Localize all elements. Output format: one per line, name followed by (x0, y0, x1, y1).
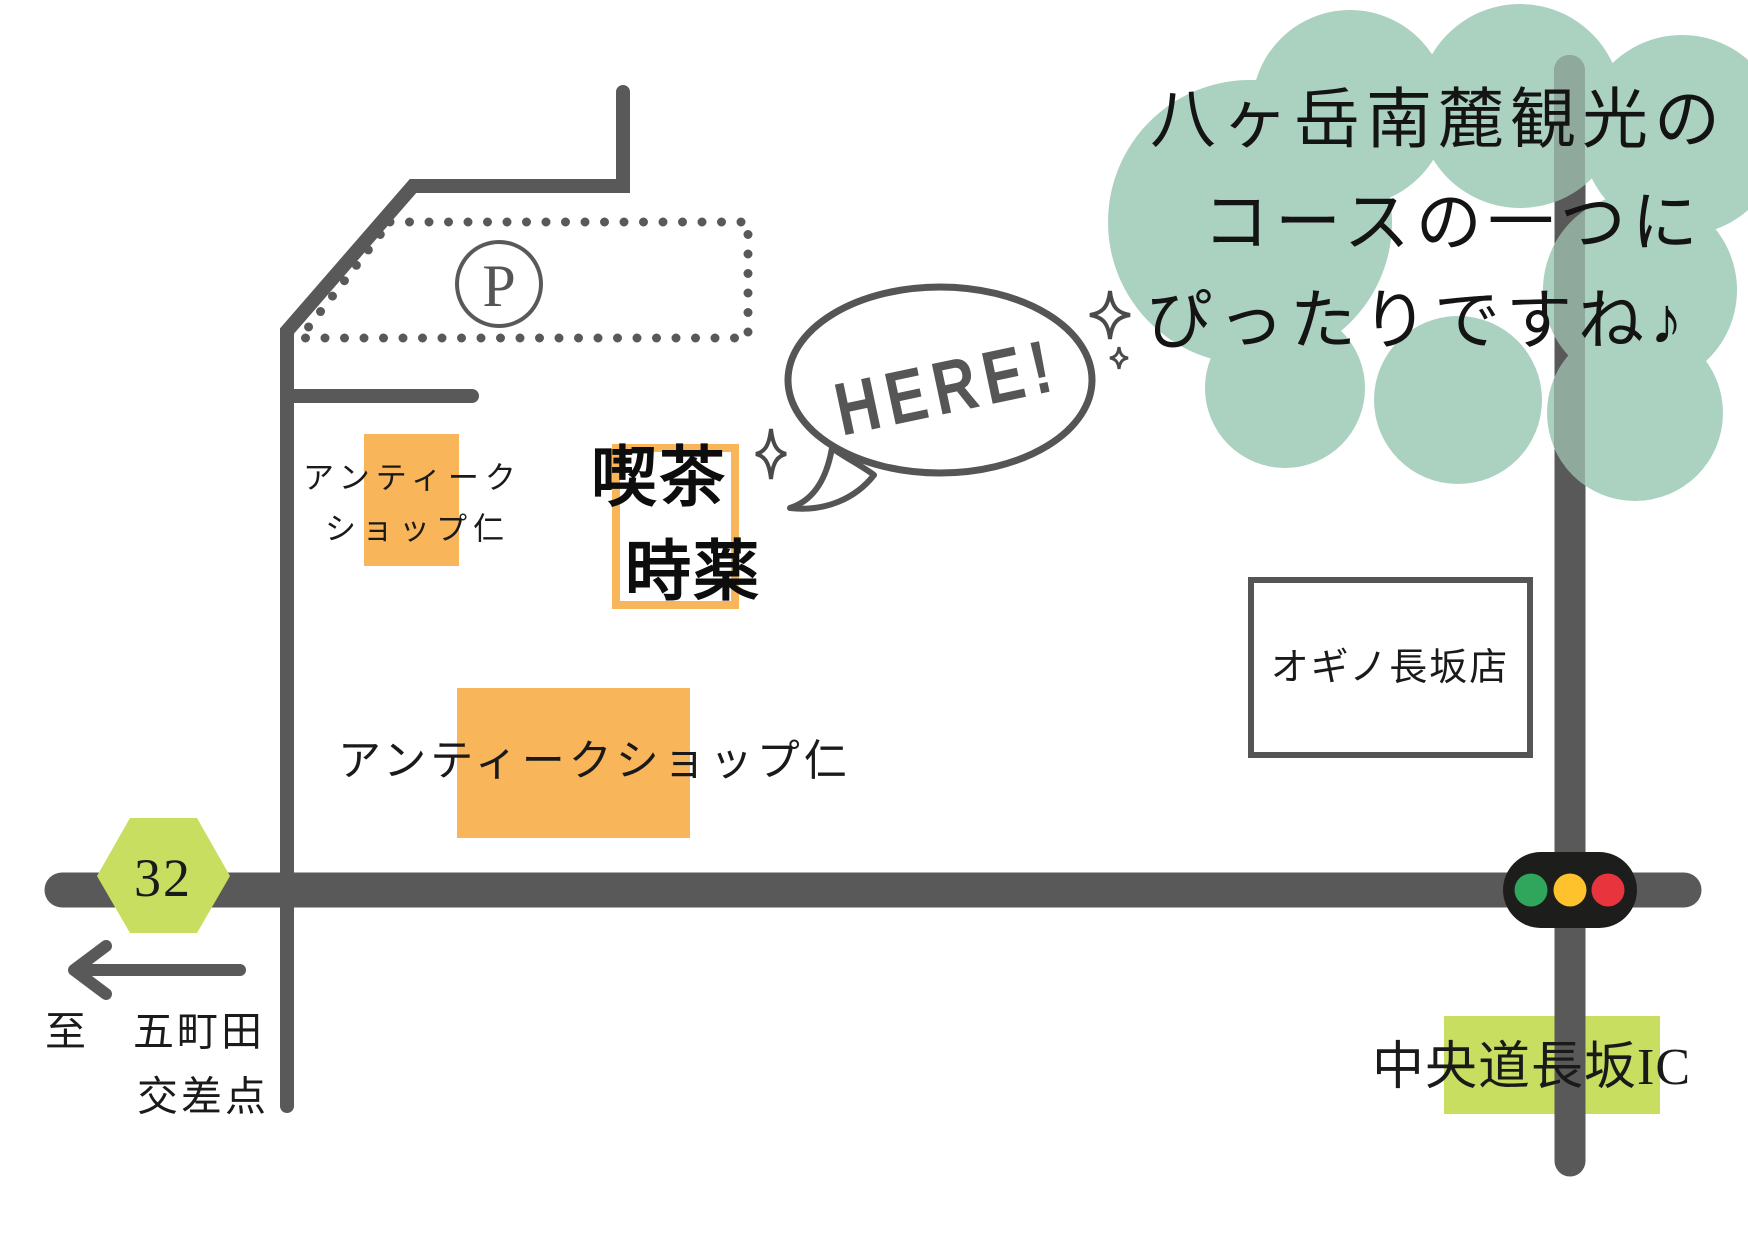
traffic-light-icon (1503, 852, 1637, 928)
interchange-label: 中央道長坂IC (1372, 1042, 1691, 1094)
direction-sign-line2: 交差点 (137, 1077, 269, 1118)
parking-symbol: P (482, 256, 515, 316)
supermarket-label: オギノ長坂店 (1271, 649, 1509, 687)
cafe-name-line2: 時薬 (625, 538, 761, 604)
antique-shop-large-label: アンティークショップ仁 (338, 741, 851, 784)
route-badge-number: 32 (134, 851, 192, 905)
arrow-left-icon (74, 946, 240, 994)
cloud-note-line3: ぴったりですね♪ (1146, 289, 1689, 355)
direction-sign-line1: 至 五町田 (45, 1012, 265, 1053)
road-upper-left (287, 92, 623, 1106)
sparkle-icon (756, 429, 786, 479)
access-map: 八ヶ岳南麓観光の コースの一つに ぴったりですね♪ HERE! P 喫茶 時薬 … (0, 0, 1748, 1240)
antique-shop-small-label2: ショップ仁 (325, 514, 510, 545)
cafe-name-line1: 喫茶 (591, 444, 727, 510)
sparkle-icon (1110, 347, 1128, 369)
sparkle-icon (1090, 291, 1130, 339)
cloud-note-line2: コースの一つに (1203, 191, 1704, 257)
antique-shop-small-label1: アンティーク (303, 463, 522, 494)
cloud-note-line1: 八ヶ岳南麓観光の (1150, 88, 1726, 154)
